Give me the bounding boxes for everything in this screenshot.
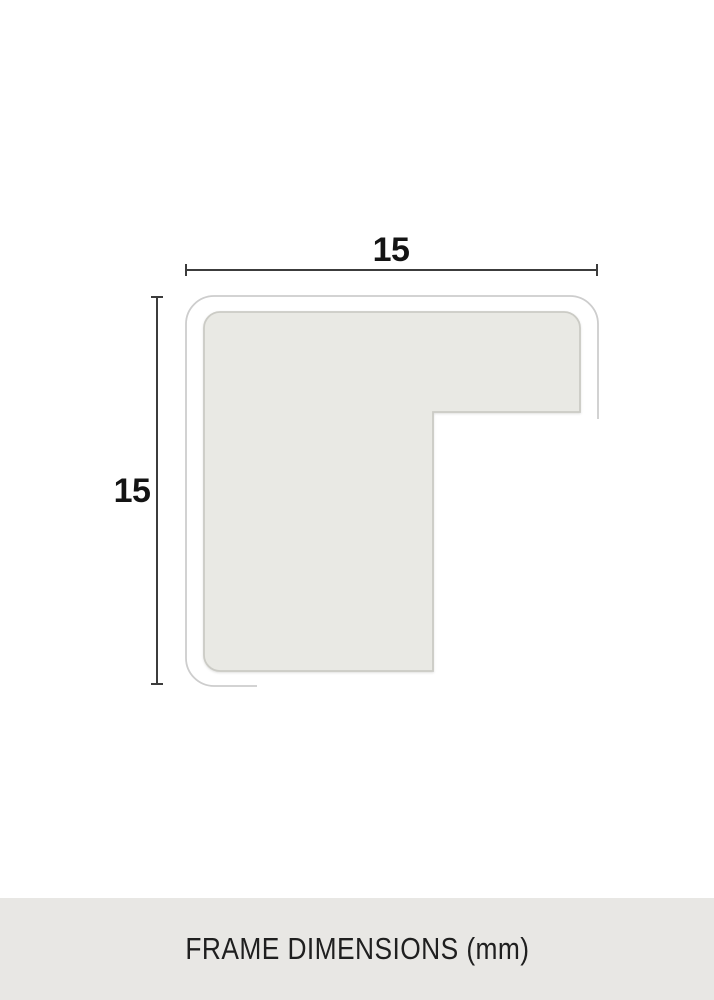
frame-profile-diagram: 15 15 (0, 0, 714, 898)
footer-bar: FRAME DIMENSIONS (mm) (0, 898, 714, 1000)
width-dimension-label: 15 (373, 231, 410, 269)
height-dimension-label: 15 (114, 472, 151, 510)
figure-caption: FRAME DIMENSIONS (mm) (185, 931, 529, 967)
frame-profile-cross-section (204, 312, 580, 671)
height-dimension (151, 297, 163, 684)
frame-dimensions-figure: 15 15 FRAME DIMENSIONS (mm) (0, 0, 714, 1000)
